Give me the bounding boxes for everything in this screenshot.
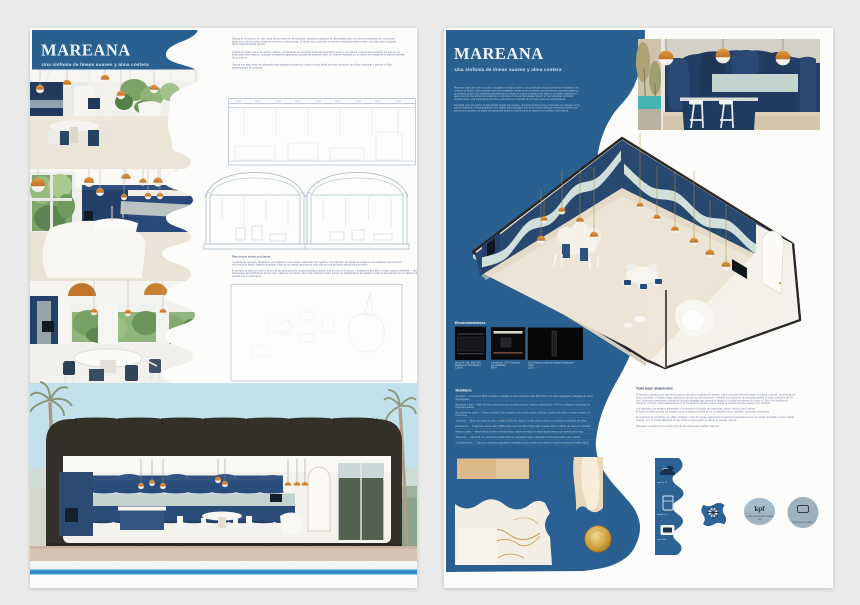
svg-text:Armarios — Frentes de MDF curv: Armarios — Frentes de MDF curvados y lac…	[456, 395, 594, 398]
svg-text:agua fría 1/2: agua fría 1/2	[657, 482, 667, 484]
svg-text:grande con su panorama.: grande con su panorama.	[232, 274, 262, 278]
svg-text:CONCURSO COCINAS: CONCURSO COCINAS	[792, 521, 813, 524]
svg-text:asoma a la piscina y al jardín: asoma a la piscina y al jardín de dunas …	[454, 109, 569, 113]
svg-text:MAREANA: MAREANA	[454, 44, 544, 63]
svg-text:esquinas suaves.: esquinas suaves.	[456, 406, 476, 409]
svg-text:El botón de latón puntúa los f: El botón de latón puntúa los frentes com…	[636, 409, 770, 413]
svg-text:Complementos — Jarrones cerámi: Complementos — Jarrones cerámica craquel…	[456, 442, 590, 445]
svg-text:Revestimiento pared — Panel on: Revestimiento pared — Panel ondulado vid…	[456, 412, 592, 415]
svg-text:MAREANA: MAREANA	[41, 41, 131, 60]
svg-text:Plan boceto alzado y el layout: Plan boceto alzado y el layout	[232, 255, 270, 259]
svg-text:Tiradores — Botón torneado de: Tiradores — Botón torneado de latón cepi…	[456, 420, 588, 423]
svg-text:rasante; así, la cocina Marean: rasante; así, la cocina Mareana se lee c…	[636, 418, 737, 422]
svg-text:mediterráneo, una casa ligera: mediterráneo, una casa ligera de brisa y…	[454, 97, 566, 101]
svg-text:de su interior.: de su interior.	[232, 55, 248, 59]
svg-text:litoral para este espacio: una: litoral para este espacio: una gran temp…	[232, 53, 405, 57]
svg-text:2024: 2024	[757, 519, 761, 521]
svg-text:ESCUELA SUPERIOR DISEÑO: ESCUELA SUPERIOR DISEÑO	[746, 515, 773, 518]
svg-text:120 b: 120 b	[528, 367, 534, 369]
svg-text:890 €: 890 €	[491, 367, 497, 369]
svg-text:curva viva.: curva viva.	[456, 414, 468, 417]
svg-text:Mobiliario: Mobiliario	[456, 389, 472, 393]
svg-text:Mesas y sillas — Mesa trébol d: Mesas y sillas — Mesa trébol de fibra mi…	[456, 431, 585, 434]
svg-text:frigorífico int: frigorífico int	[657, 513, 667, 516]
svg-text:Mareana: la costa hecha cocina: Mareana: la costa hecha cocina; una ola …	[636, 424, 720, 428]
svg-text:Electrodomésticos: Electrodomésticos	[455, 321, 485, 325]
svg-text:Iluminación — Colgantes esfera: Iluminación — Colgantes esfera cobre Ø25…	[456, 425, 592, 428]
svg-text:continuo; el muro cortina desa: continuo; el muro cortina desaparece en …	[636, 401, 771, 405]
svg-text:Vino Wineteca columna-bodega c: Vino Wineteca columna-bodega climatizada…	[528, 361, 575, 364]
svg-text:Encimera e isla — Solid Surfac: Encimera e isla — Solid Surface color ar…	[456, 403, 591, 406]
svg-text:kpf: kpf	[754, 505, 765, 513]
svg-text:Una sinfonía de líneas suaves: Una sinfonía de líneas suaves y alma cos…	[42, 62, 150, 68]
svg-text:de la sección litoral: espacio: de la sección litoral: espacio templado …	[232, 263, 369, 267]
svg-text:horno 220v: horno 220v	[657, 539, 666, 541]
svg-text:Texto base: alzamientos: Texto base: alzamientos	[636, 387, 673, 391]
svg-text:1.190 €: 1.190 €	[455, 367, 463, 369]
svg-text:de la costa templada serena.: de la costa templada serena.	[232, 42, 266, 46]
svg-text:Taburetes — Altura 65 cm, estr: Taburetes — Altura 65 cm, estructura tub…	[456, 436, 582, 439]
svg-text:Una sinfonía de líneas suaves: Una sinfonía de líneas suaves y alma cos…	[455, 67, 562, 72]
svg-text:amortiguado.: amortiguado.	[456, 398, 471, 401]
svg-text:arquitectónico de contacto.: arquitectónico de contacto.	[232, 65, 263, 69]
